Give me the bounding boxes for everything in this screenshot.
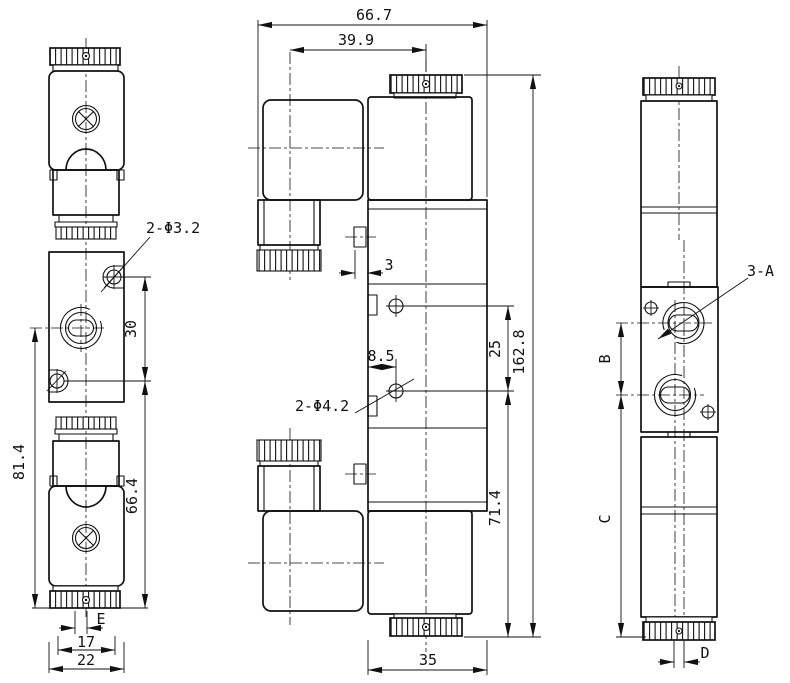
- dim-d-label: D: [700, 644, 709, 662]
- dim-b-label: B: [596, 354, 614, 363]
- dim-35-label: 35: [419, 651, 437, 669]
- coil-ribbed-nut: [56, 227, 116, 239]
- dim-3-label: 3: [384, 256, 393, 274]
- dim-8-5-label: 8.5: [367, 347, 394, 365]
- dim-162-8-label: 162.8: [510, 329, 528, 374]
- dim-30-label: 30: [122, 320, 140, 338]
- cable-gland-nut: [257, 250, 321, 271]
- dim-25-label: 25: [486, 340, 504, 358]
- dim-c-label: C: [596, 514, 614, 523]
- dim-81-4-label: 81.4: [10, 444, 28, 480]
- dim-71-4-label: 71.4: [486, 490, 504, 526]
- dim-e-label: E: [96, 610, 105, 628]
- technical-drawing-page: 2-Φ3.2 30 66.4 81.4 E 17 22: [0, 0, 790, 683]
- dim-66-4-label: 66.4: [123, 478, 141, 514]
- coil-ribbed-nut: [56, 417, 116, 429]
- dim-66-7-label: 66.7: [356, 6, 392, 24]
- hole-callout-label: 2-Φ3.2: [146, 219, 200, 237]
- hole-callout-label: 2-Φ4.2: [295, 397, 349, 415]
- port-callout-label: 3-A: [747, 262, 774, 280]
- dim-39-9-label: 39.9: [338, 31, 374, 49]
- cap-collar: [646, 95, 712, 101]
- dim-17-label: 17: [77, 633, 95, 651]
- dim-22-label: 22: [77, 651, 95, 669]
- cap-collar: [53, 65, 118, 71]
- canvas: [0, 0, 790, 683]
- solenoid-valve-drawing: 2-Φ3.2 30 66.4 81.4 E 17 22: [0, 0, 790, 683]
- cable-gland-nut: [257, 440, 321, 461]
